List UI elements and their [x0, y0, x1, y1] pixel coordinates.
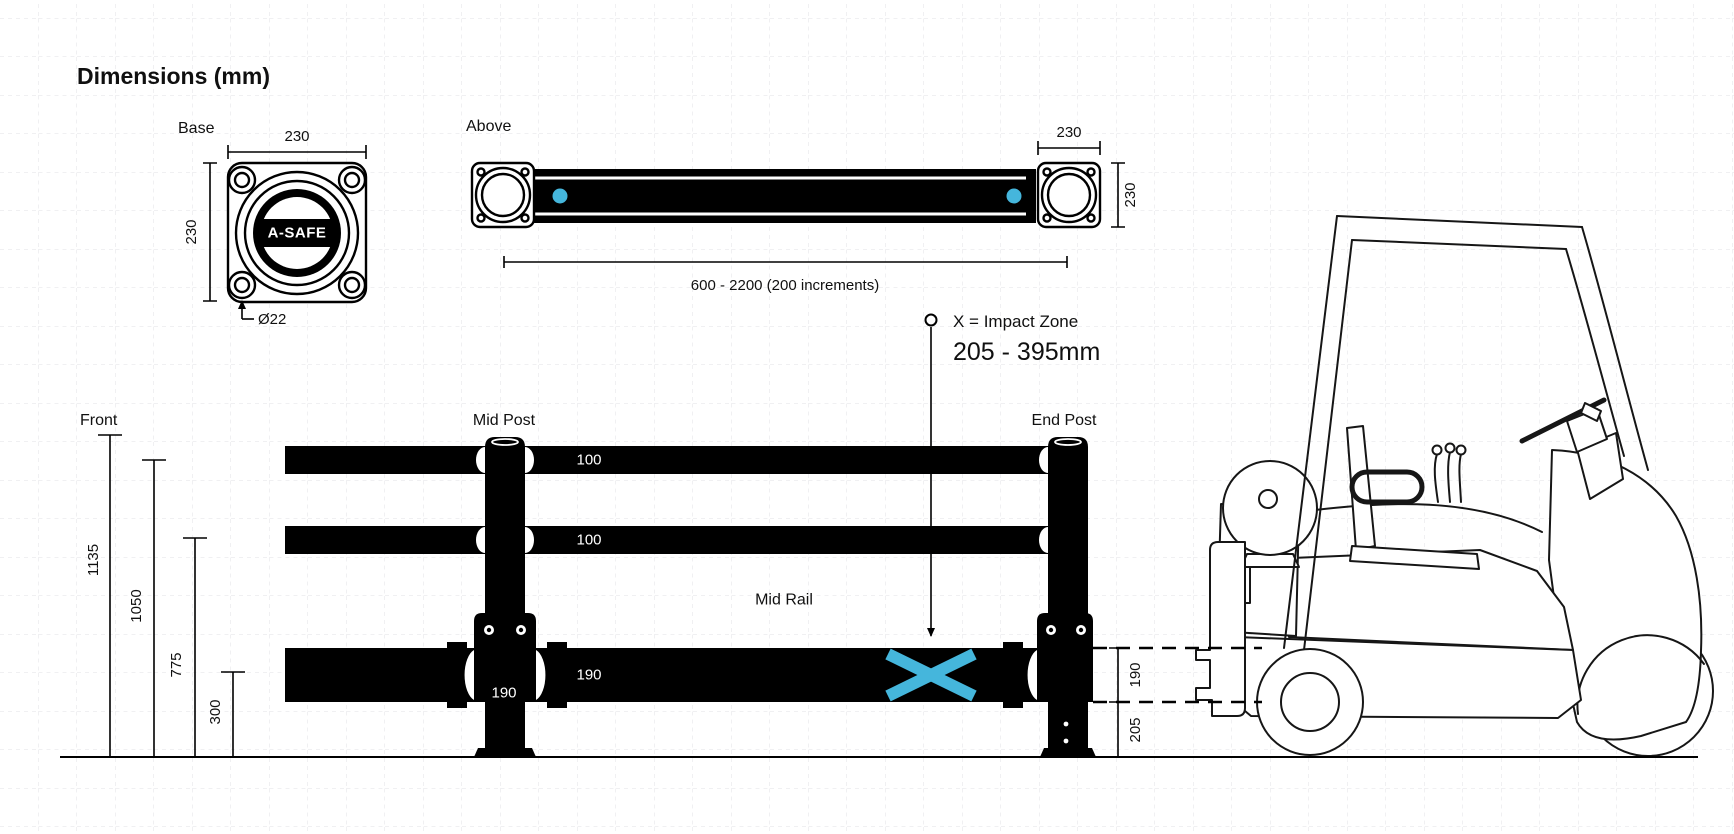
mid-post-foot — [474, 748, 536, 757]
end-post-foot — [1040, 748, 1096, 757]
length-range-value: 600 - 2200 (200 increments) — [691, 277, 879, 294]
asafe-logo-text: A-SAFE — [268, 225, 327, 242]
page-title: Dimensions (mm) — [77, 63, 270, 89]
dimensions-diagram: Dimensions (mm) Base 230 230 A-SAFE — [0, 0, 1734, 834]
height-1050-value: 1050 — [128, 589, 145, 622]
rail-pin-left — [553, 189, 568, 204]
rail-pin-right — [1007, 189, 1022, 204]
bottom-rail-size: 190 — [576, 667, 601, 684]
side-rail-height-value: 190 — [1127, 662, 1144, 687]
post-width-value: 190 — [491, 685, 516, 702]
plate-depth-value: 230 — [1122, 182, 1139, 207]
front-wheel-hub — [1281, 673, 1339, 731]
mid-post-label: Mid Post — [473, 412, 536, 429]
above-right-plate — [1038, 163, 1100, 227]
asafe-logo: A-SAFE — [236, 172, 358, 294]
impact-zone-title: X = Impact Zone — [953, 312, 1078, 331]
above-left-plate — [472, 163, 534, 227]
bolt-hole-value: Ø22 — [258, 311, 286, 328]
height-300-value: 300 — [207, 699, 224, 724]
base-height-value: 230 — [183, 219, 200, 244]
end-post-label: End Post — [1032, 412, 1097, 429]
impact-zone-range: 205 - 395mm — [953, 338, 1100, 366]
side-ground-clearance-value: 205 — [1127, 717, 1144, 742]
height-1135-value: 1135 — [85, 544, 102, 576]
leader-origin-dot — [926, 315, 937, 326]
middle-rail-size: 100 — [576, 532, 601, 549]
top-rail-size: 100 — [576, 452, 601, 469]
middle-rail — [285, 526, 1050, 554]
height-775-value: 775 — [168, 652, 185, 677]
mid-rail-label: Mid Rail — [755, 592, 813, 609]
base-view-label: Base — [178, 120, 215, 137]
top-rail — [285, 446, 1050, 474]
plate-width-value: 230 — [1056, 124, 1081, 141]
diagram-canvas: Dimensions (mm) Base 230 230 A-SAFE — [0, 0, 1734, 834]
above-view-label: Above — [466, 118, 511, 135]
base-width-value: 230 — [284, 128, 309, 145]
front-view-label: Front — [80, 412, 118, 429]
